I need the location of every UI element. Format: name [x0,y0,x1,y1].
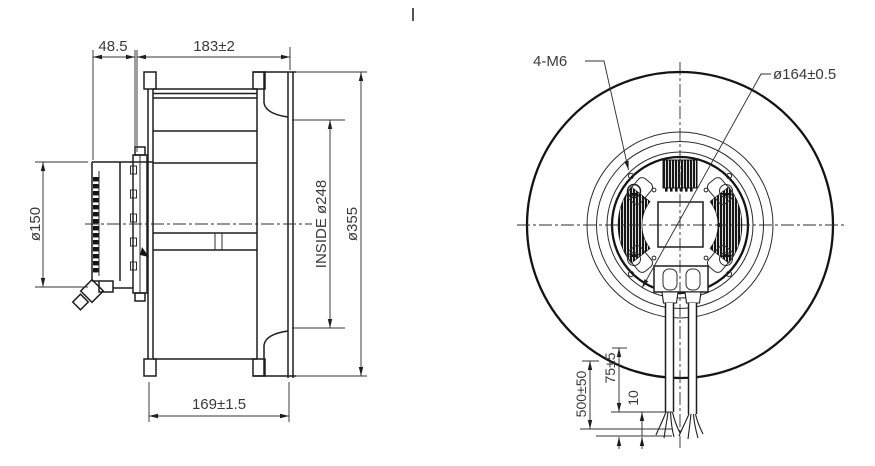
side-view: 48.5 183±2 ø150 INSIDE ø248 ø355 [27,38,367,422]
motor-outline [73,162,153,310]
dim-cable-tip: 10 [625,390,641,406]
cable-strands [656,412,703,439]
front-view: 4-M6 ø164±0.5 500±50 75±5 10 [517,53,846,449]
connector-box [654,266,708,303]
cable-dimensions: 500±50 75±5 10 [573,348,672,449]
drawing-canvas: 48.5 183±2 ø150 INSIDE ø248 ø355 [0,0,875,466]
dim-inside-diameter: INSIDE ø248 [313,180,330,268]
motor-foot [99,281,113,292]
gland-collar-left [662,292,678,303]
dim-outer-diameter: ø355 [344,207,361,241]
motor-ribs [93,177,99,272]
label-mounting-holes: 4-M6 [533,53,567,70]
side-dimensions: 48.5 183±2 ø150 INSIDE ø248 ø355 [27,38,367,422]
label-pitch-circle: ø164±0.5 [773,66,836,83]
cables [656,303,703,439]
inlet-plate [253,72,296,378]
fan-technical-drawing: 48.5 183±2 ø150 INSIDE ø248 ø355 [0,0,875,466]
leader-4-m6: 4-M6 [533,53,629,170]
hub-square [658,202,703,247]
dim-impeller-width: 183±2 [193,38,235,55]
dim-cable-length: 500±50 [573,370,589,417]
dim-motor-diameter: ø150 [27,207,44,241]
dim-motor-length: 48.5 [98,38,127,55]
gland-collar-right [685,292,701,303]
dim-base-depth: 169±1.5 [192,396,246,413]
dim-cable-strip: 75±5 [602,352,618,383]
